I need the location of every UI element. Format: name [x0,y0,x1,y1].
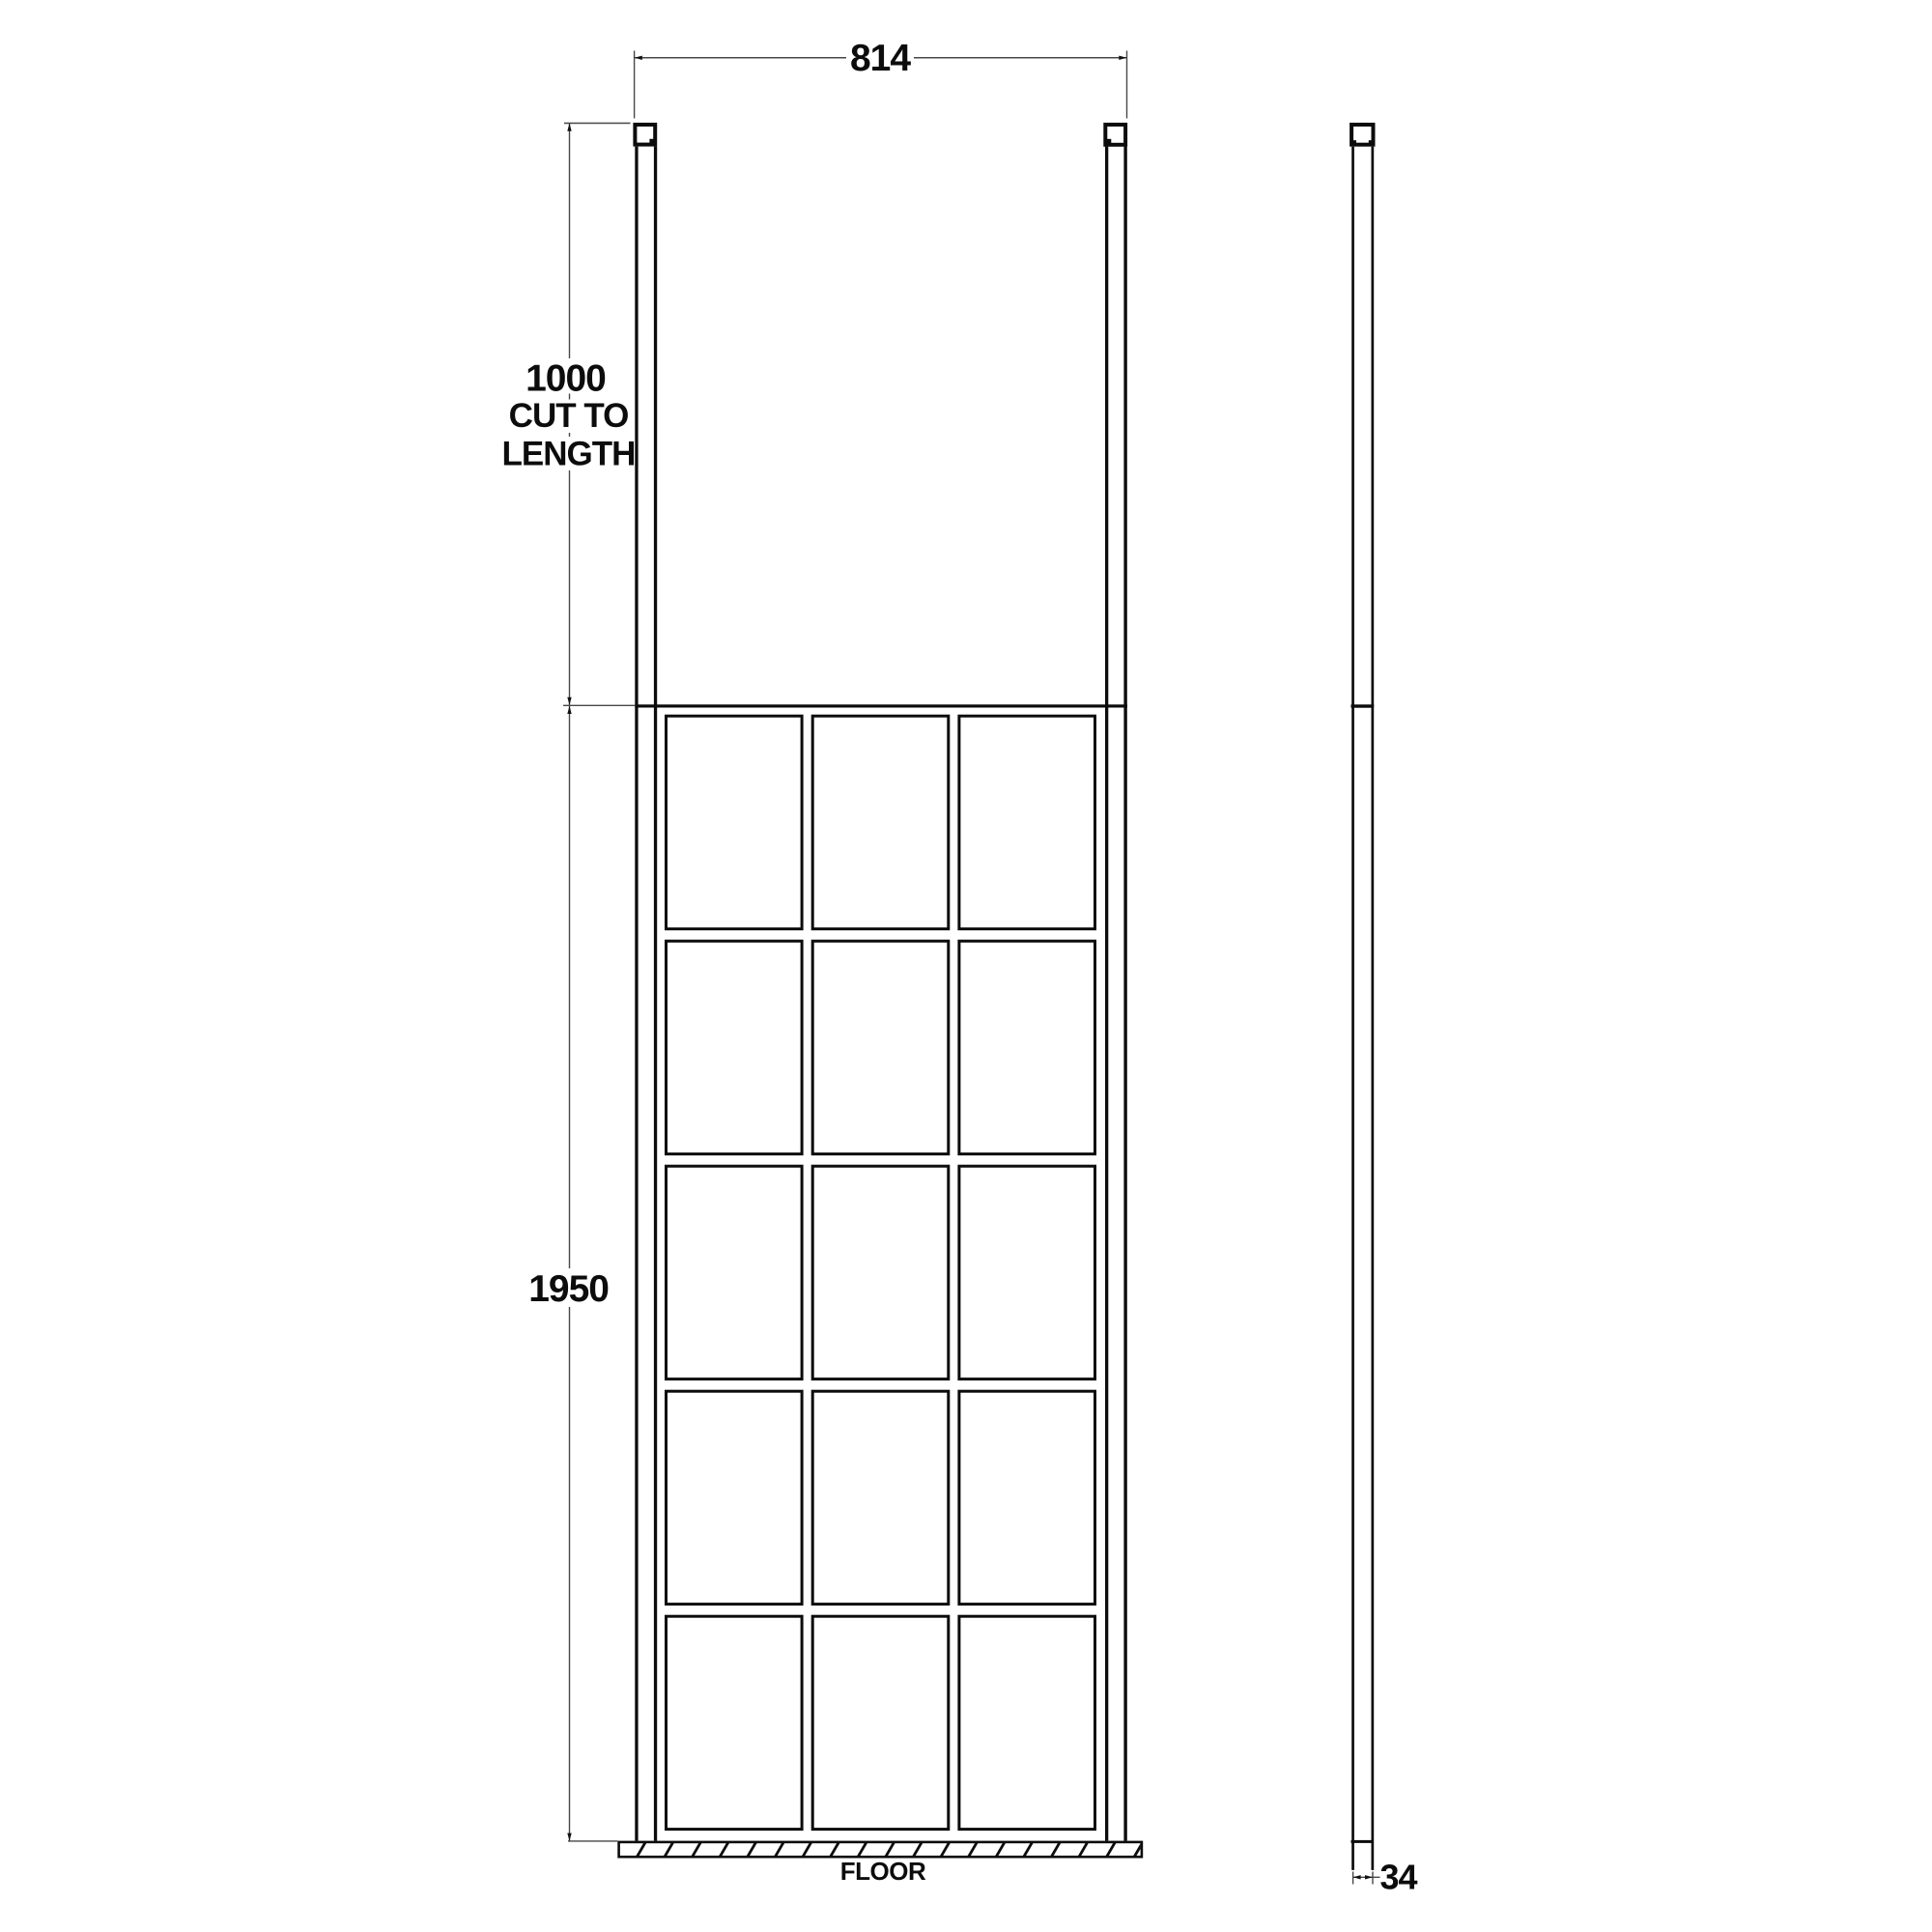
svg-text:34: 34 [1380,1858,1418,1897]
svg-text:1000: 1000 [526,358,606,400]
svg-text:1950: 1950 [528,1268,609,1310]
svg-text:CUT TO: CUT TO [509,397,629,435]
svg-text:LENGTH: LENGTH [502,435,636,472]
svg-text:FLOOR: FLOOR [840,1857,926,1886]
svg-text:814: 814 [850,38,911,79]
